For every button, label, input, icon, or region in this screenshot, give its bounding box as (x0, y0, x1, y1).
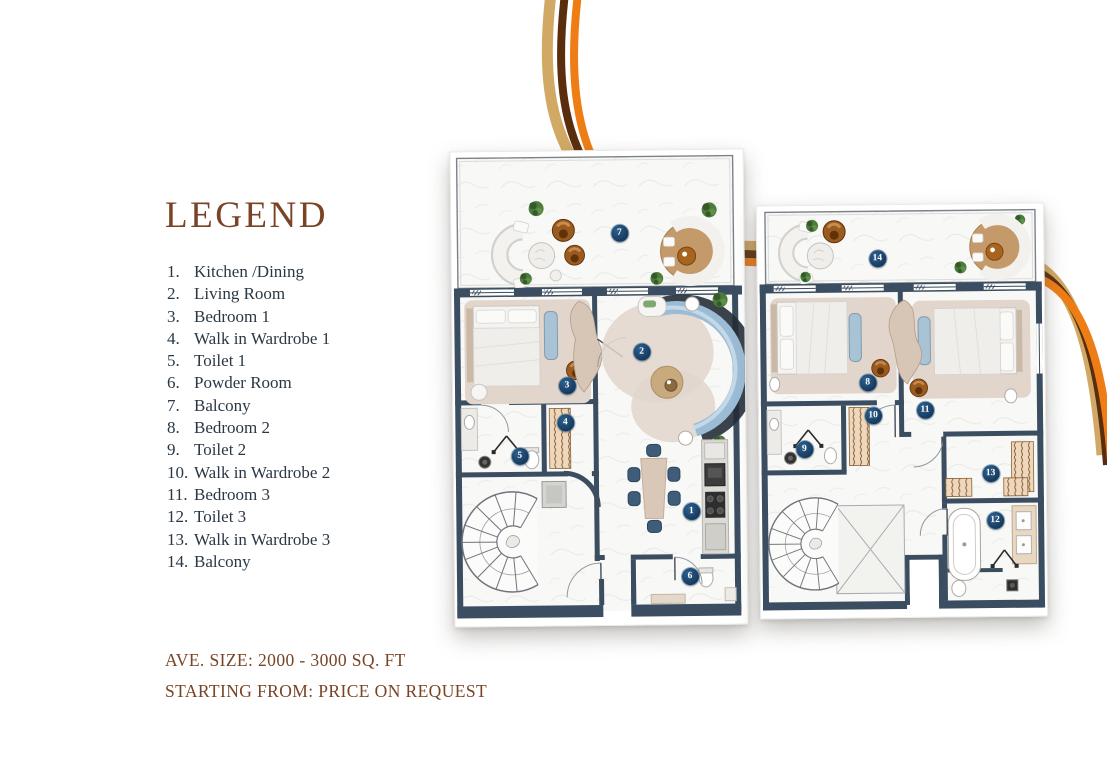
marker-10: 10 (864, 407, 881, 424)
rattan-chair (552, 219, 574, 241)
legend-item: 13.Walk in Wardrobe 3 (167, 529, 330, 551)
legend-item-number: 5. (167, 350, 194, 372)
legend-item: 6.Powder Room (167, 372, 330, 394)
legend-item-number: 6. (167, 372, 194, 394)
legend-title: LEGEND (165, 194, 330, 237)
marker-8: 8 (859, 374, 876, 391)
average-size-line: AVE. SIZE: 2000 - 3000 SQ. FT (165, 645, 487, 676)
marker-7: 7 (611, 224, 628, 241)
cooktop (705, 492, 725, 518)
legend-item-number: 13. (167, 529, 194, 551)
legend-item-label: Walk in Wardrobe 3 (194, 530, 330, 549)
legend-item-number: 8. (167, 417, 194, 439)
marker-1: 1 (683, 502, 700, 519)
legend-list: 1.Kitchen /Dining 2.Living Room 3.Bedroo… (167, 261, 330, 573)
round-table (807, 243, 833, 269)
legend-panel: LEGEND 1.Kitchen /Dining 2.Living Room 3… (165, 194, 330, 573)
marker-12: 12 (987, 511, 1004, 528)
legend-item: 3.Bedroom 1 (167, 306, 330, 328)
legend-item-number: 14. (167, 551, 194, 573)
legend-item-label: Balcony (194, 396, 251, 415)
balcony-14 (765, 210, 1036, 286)
legend-item: 1.Kitchen /Dining (167, 261, 330, 283)
marker-6: 6 (681, 567, 698, 584)
legend-item-label: Walk in Wardrobe 2 (194, 463, 330, 482)
floor-plan-upper-svg (757, 204, 1047, 619)
legend-item: 12.Toilet 3 (167, 506, 330, 528)
rattan-chair (565, 245, 585, 265)
legend-item-label: Bedroom 1 (194, 307, 270, 326)
legend-item-label: Balcony (194, 552, 251, 571)
legend-item-number: 9. (167, 439, 194, 461)
void-area (836, 505, 905, 594)
legend-item-number: 10. (167, 462, 194, 484)
legend-item: 9.Toilet 2 (167, 439, 330, 461)
marker-11: 11 (916, 401, 933, 418)
legend-item: 8.Bedroom 2 (167, 417, 330, 439)
floor-plan-lower-level: 7 2 3 4 5 1 6 (450, 148, 749, 627)
legend-item-label: Kitchen /Dining (194, 262, 304, 281)
floor-plan-brochure-page: { "legend": { "title": "LEGEND", "items"… (0, 0, 1107, 768)
legend-item-label: Powder Room (194, 373, 292, 392)
legend-item-number: 4. (167, 328, 194, 350)
legend-item-label: Toilet 2 (194, 440, 246, 459)
legend-item-label: Bedroom 3 (194, 485, 270, 504)
legend-item-number: 2. (167, 283, 194, 305)
bed-bench (849, 313, 862, 361)
bed-bench (544, 311, 558, 359)
footer-info: AVE. SIZE: 2000 - 3000 SQ. FT STARTING F… (165, 645, 487, 707)
legend-item-label: Living Room (194, 284, 285, 303)
rattan-chair (823, 221, 845, 243)
legend-item-number: 12. (167, 506, 194, 528)
marker-5: 5 (511, 447, 528, 464)
marker-9: 9 (796, 440, 813, 457)
bedroom-3 (909, 300, 1031, 404)
legend-item-number: 11. (167, 484, 194, 506)
legend-item-number: 7. (167, 395, 194, 417)
legend-item: 11.Bedroom 3 (167, 484, 330, 506)
circular-sofa-set (660, 222, 719, 281)
circular-sofa-set (969, 219, 1025, 275)
fridge (705, 524, 725, 550)
bedroom-2 (769, 297, 897, 394)
marker-3: 3 (558, 377, 575, 394)
legend-item-label: Toilet 3 (194, 507, 246, 526)
floor-plan-upper-level: 14 8 11 10 9 13 12 (756, 203, 1048, 620)
marker-2: 2 (633, 343, 650, 360)
floor-plan-lower-svg (451, 149, 748, 626)
legend-item-label: Toilet 1 (194, 351, 246, 370)
legend-item-label: Bedroom 2 (194, 418, 270, 437)
kitchen (702, 440, 729, 554)
marker-4: 4 (557, 414, 574, 431)
legend-item: 5.Toilet 1 (167, 350, 330, 372)
legend-item: 14.Balcony (167, 551, 330, 573)
marker-13: 13 (982, 464, 999, 481)
starting-price-line: STARTING FROM: PRICE ON REQUEST (165, 676, 487, 707)
legend-item: 10.Walk in Wardrobe 2 (167, 462, 330, 484)
marker-14: 14 (869, 250, 886, 267)
legend-item-label: Walk in Wardrobe 1 (194, 329, 330, 348)
legend-item: 7.Balcony (167, 395, 330, 417)
balcony-7 (457, 156, 734, 290)
round-table (528, 242, 554, 268)
legend-item-number: 1. (167, 261, 194, 283)
legend-item: 4.Walk in Wardrobe 1 (167, 328, 330, 350)
legend-item: 2.Living Room (167, 283, 330, 305)
legend-item-number: 3. (167, 306, 194, 328)
dining-table (641, 458, 668, 518)
